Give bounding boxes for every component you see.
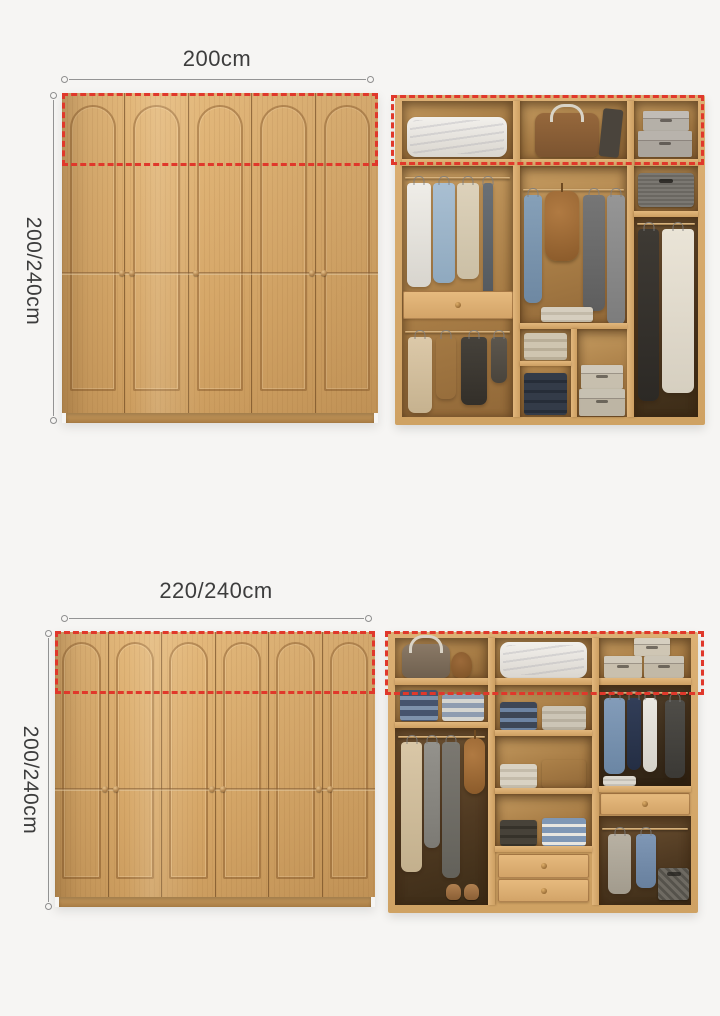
- hanging-shirt-tan: [608, 834, 631, 894]
- wardrobe-door: [189, 93, 252, 413]
- shelf-plank: [402, 159, 698, 166]
- shelf-plank: [495, 788, 592, 794]
- door-knob: [129, 270, 135, 276]
- hanging-shirt-dark: [665, 700, 685, 778]
- door-row: [55, 632, 375, 897]
- arch-groove: [116, 642, 155, 879]
- hanging-item-gray: [424, 742, 440, 848]
- wardrobe-door: [269, 632, 323, 897]
- divider-plank: [513, 101, 520, 417]
- shelf-plank: [634, 211, 698, 217]
- hanging-item-dark: [491, 337, 507, 383]
- hanging-long-dress: [662, 229, 694, 393]
- arch-groove: [276, 642, 315, 879]
- duffel-bag: [535, 113, 599, 157]
- shelf-plank: [395, 678, 691, 685]
- shelf-plank: [495, 730, 592, 736]
- wardrobe-door: [162, 632, 216, 897]
- interior-drawer: [498, 879, 589, 902]
- shelf-plank: [495, 846, 592, 852]
- hanging-tie: [483, 183, 493, 301]
- fabric-storage-box: [638, 173, 694, 207]
- hanging-top-beige: [408, 337, 432, 413]
- width-dimension-label: 200cm: [117, 46, 317, 72]
- arch-groove: [324, 105, 370, 391]
- folded-jeans-stack: [442, 694, 484, 721]
- arch-groove: [223, 642, 262, 879]
- storage-box: [604, 656, 642, 678]
- door-knob: [309, 270, 315, 276]
- wardrobe-door: [109, 632, 163, 897]
- hanging-shirt-white: [643, 698, 657, 772]
- duffel-bag: [402, 644, 450, 678]
- height-dimension-label: 200/240cm: [18, 710, 42, 850]
- backpack: [464, 738, 485, 794]
- wardrobe-door: [323, 632, 376, 897]
- storage-box: [579, 389, 625, 416]
- wardrobe-dimension-sheet: 200cm 200/240cm: [0, 0, 720, 1016]
- hanging-dress-beige: [401, 742, 422, 872]
- hat: [451, 652, 472, 678]
- door-knob: [193, 270, 199, 276]
- storage-basket: [658, 868, 689, 900]
- dimension-endpoint: [365, 615, 372, 622]
- folded-stack-blue-white: [542, 818, 586, 846]
- height-dimension-label: 200/240cm: [21, 201, 45, 341]
- storage-box: [634, 638, 670, 656]
- divider-plank: [571, 329, 577, 417]
- door-row: [62, 93, 378, 413]
- folded-duvet: [500, 642, 587, 678]
- divider-plank: [627, 101, 634, 417]
- wardrobe-interior-220-240: [388, 632, 698, 913]
- hanging-shirt-navy: [627, 698, 641, 770]
- shoe: [464, 884, 479, 900]
- dimension-endpoint: [61, 76, 68, 83]
- folded-sweater: [541, 307, 593, 322]
- wardrobe-door: [62, 93, 125, 413]
- folded-stack-denim: [542, 760, 586, 788]
- wardrobe-door: [55, 632, 109, 897]
- dimension-endpoint: [367, 76, 374, 83]
- interior-drawer: [498, 854, 589, 878]
- folded-stack-light: [500, 764, 537, 788]
- height-dimension-line: [44, 630, 53, 910]
- door-knob: [119, 270, 125, 276]
- wardrobe-front-200: [62, 93, 378, 423]
- door-knob: [102, 786, 108, 792]
- plinth: [59, 897, 371, 907]
- folded-item: [603, 776, 636, 786]
- door-knob: [327, 786, 333, 792]
- wardrobe-front-220-240: [55, 632, 375, 907]
- storage-box: [581, 365, 623, 389]
- storage-box: [644, 656, 684, 678]
- shelf-plank: [520, 361, 571, 366]
- arch-groove: [70, 105, 116, 391]
- hanging-long-coat: [638, 229, 659, 401]
- hanging-shirt-blue: [636, 834, 656, 888]
- width-dimension-line: [61, 614, 372, 623]
- plinth: [66, 413, 374, 423]
- storage-box: [643, 111, 689, 131]
- door-knob: [316, 786, 322, 792]
- arch-groove: [169, 642, 208, 879]
- door-knob: [209, 786, 215, 792]
- width-dimension-line: [61, 75, 374, 84]
- wardrobe-door: [316, 93, 378, 413]
- folded-stack-dark: [500, 702, 537, 730]
- hanging-shirt-white: [407, 183, 431, 287]
- door-knob: [321, 270, 327, 276]
- interior-drawer: [403, 291, 513, 319]
- backpack: [545, 191, 579, 261]
- hanging-coat-gray: [583, 195, 605, 311]
- height-dimension-line: [49, 92, 58, 424]
- folded-stack-light: [542, 706, 586, 730]
- dimension-endpoint: [50, 92, 57, 99]
- arch-groove: [330, 642, 369, 879]
- hanging-top-tan: [436, 337, 456, 399]
- arch-groove: [260, 105, 306, 391]
- door-knob: [113, 786, 119, 792]
- folded-jeans-stack: [400, 690, 438, 721]
- arch-groove: [197, 105, 243, 391]
- hanging-shirt-denim: [604, 698, 625, 774]
- hanging-jacket-dark: [461, 337, 487, 405]
- dimension-endpoint: [45, 903, 52, 910]
- shelf-plank: [599, 786, 691, 792]
- arch-groove: [62, 642, 101, 879]
- folded-duvet: [407, 117, 507, 157]
- width-dimension-label: 220/240cm: [116, 578, 316, 604]
- wardrobe-door: [125, 93, 188, 413]
- storage-box: [638, 131, 692, 157]
- divider-plank: [592, 638, 599, 905]
- dimension-endpoint: [45, 630, 52, 637]
- folded-jeans-stack: [524, 373, 567, 415]
- door-rail-groove: [62, 272, 378, 275]
- hanging-shirt-blue: [433, 183, 455, 283]
- shelf-plank: [395, 722, 488, 728]
- divider-plank: [488, 638, 495, 905]
- wardrobe-door: [252, 93, 315, 413]
- folded-stack-dark: [500, 820, 537, 846]
- hanging-coat-light-gray: [607, 195, 625, 325]
- hanging-shirt-cream: [457, 183, 479, 279]
- wardrobe-door: [216, 632, 270, 897]
- hanging-jeans: [524, 195, 542, 303]
- dimension-endpoint: [61, 615, 68, 622]
- hanging-item-gray: [442, 742, 460, 878]
- door-knob: [220, 786, 226, 792]
- dimension-endpoint: [50, 417, 57, 424]
- shoe: [446, 884, 461, 900]
- wardrobe-interior-200: [395, 95, 705, 425]
- arch-groove: [133, 105, 179, 391]
- folded-knitwear-stack: [524, 333, 567, 360]
- interior-drawer: [600, 793, 690, 815]
